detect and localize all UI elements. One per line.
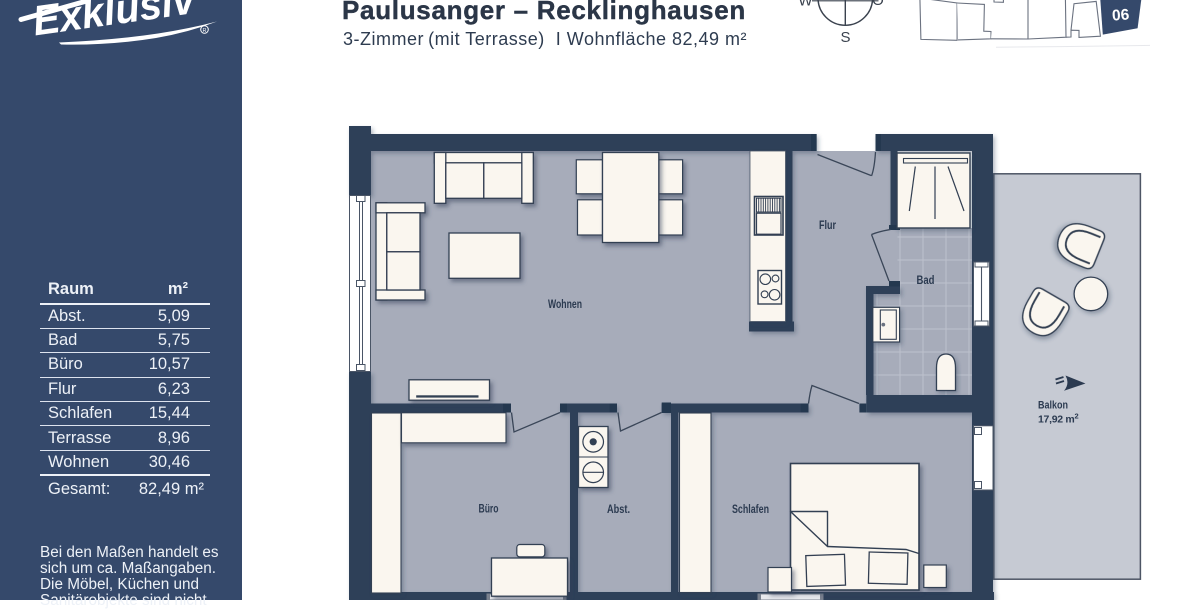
- svg-text:Wohnen: Wohnen: [548, 299, 582, 311]
- svg-text:Bad: Bad: [917, 275, 935, 287]
- svg-text:Büro: Büro: [479, 504, 499, 516]
- svg-text:O: O: [872, 0, 884, 9]
- svg-text:Abst.: Abst.: [607, 504, 630, 516]
- svg-text:Balkon: Balkon: [1038, 400, 1068, 412]
- svg-text:W: W: [798, 0, 813, 9]
- svg-text:17,92 m2: 17,92 m2: [1038, 412, 1078, 426]
- svg-text:S: S: [840, 29, 850, 46]
- svg-text:Schlafen: Schlafen: [732, 504, 769, 516]
- svg-text:06: 06: [1111, 6, 1130, 24]
- svg-text:Flur: Flur: [819, 220, 836, 232]
